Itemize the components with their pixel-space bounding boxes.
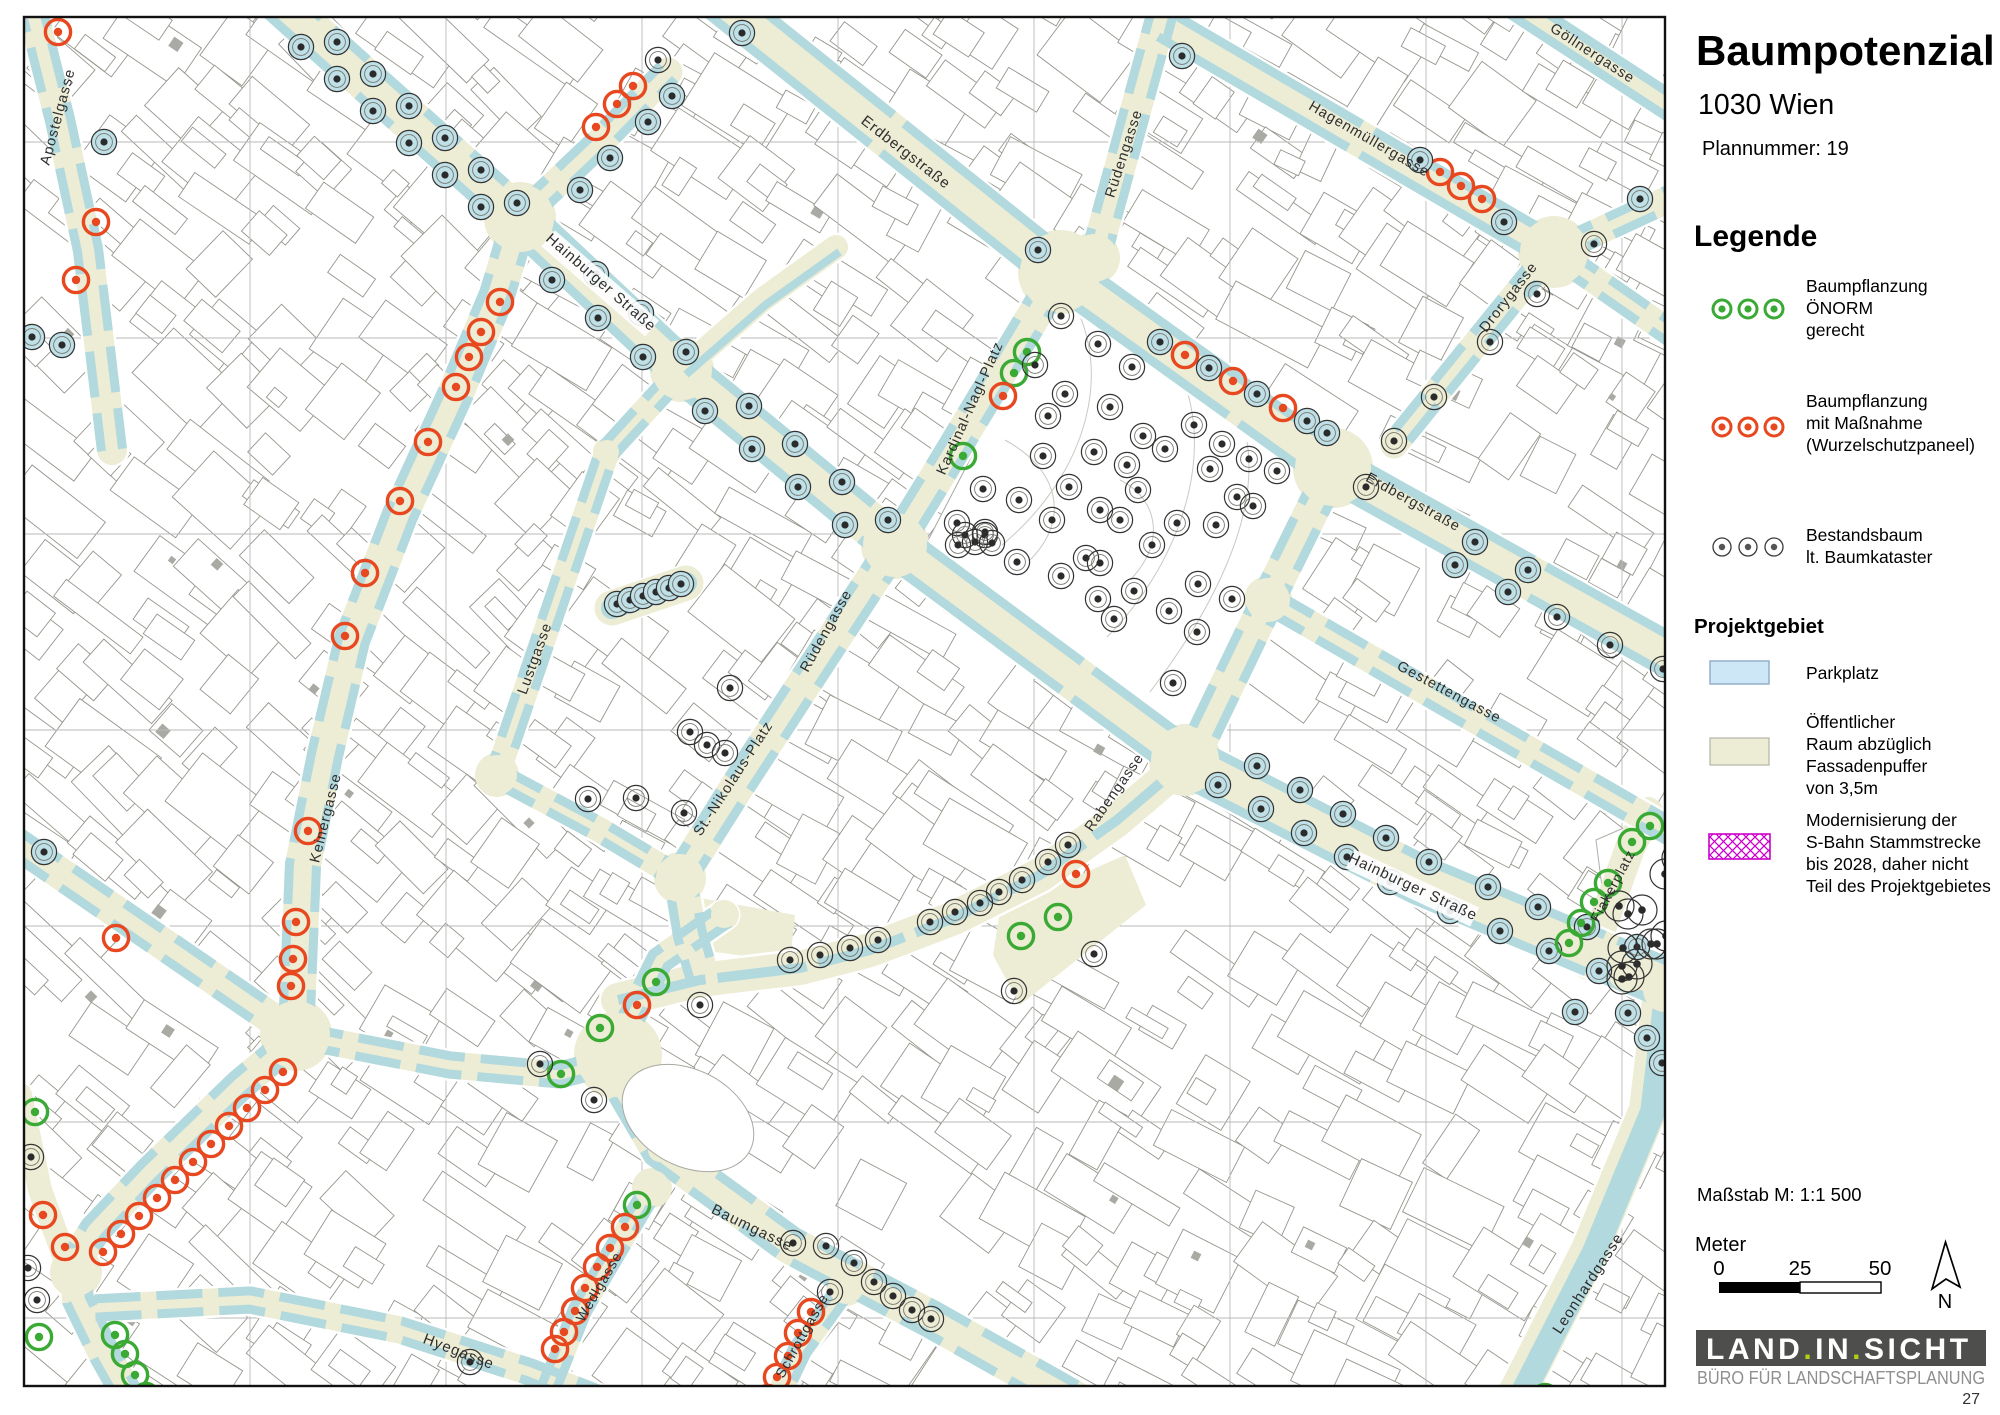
svg-text:1030 Wien: 1030 Wien: [1698, 89, 1834, 121]
svg-text:Öffentlicher: Öffentlicher: [1806, 712, 1895, 732]
svg-text:Maßstab M: 1:1 500: Maßstab M: 1:1 500: [1697, 1184, 1862, 1205]
svg-text:Baumpflanzung: Baumpflanzung: [1806, 391, 1928, 411]
svg-text:ÖNORM: ÖNORM: [1806, 298, 1873, 318]
svg-text:BÜRO FÜR LANDSCHAFTSPLANUNG: BÜRO FÜR LANDSCHAFTSPLANUNG: [1697, 1368, 1985, 1388]
svg-text:von 3,5m: von 3,5m: [1806, 778, 1878, 798]
svg-text:Meter: Meter: [1695, 1234, 1746, 1256]
svg-text:Baumpotenzial: Baumpotenzial: [1696, 27, 1995, 74]
svg-text:(Wurzelschutzpaneel): (Wurzelschutzpaneel): [1806, 435, 1975, 455]
svg-text:0: 0: [1713, 1257, 1724, 1280]
svg-text:Teil des Projektgebietes: Teil des Projektgebietes: [1806, 876, 1991, 896]
svg-text:Bestandsbaum: Bestandsbaum: [1806, 525, 1923, 545]
svg-text:Baumpflanzung: Baumpflanzung: [1806, 276, 1928, 296]
svg-text:lt. Baumkataster: lt. Baumkataster: [1806, 547, 1933, 567]
svg-text:Plannummer: 19: Plannummer: 19: [1702, 138, 1849, 160]
svg-text:mit Maßnahme: mit Maßnahme: [1806, 413, 1923, 433]
svg-text:S-Bahn Stammstrecke: S-Bahn Stammstrecke: [1806, 832, 1981, 852]
svg-text:50: 50: [1869, 1257, 1892, 1280]
svg-text:N: N: [1938, 1291, 1952, 1313]
svg-text:Raum abzüglich: Raum abzüglich: [1806, 734, 1931, 754]
svg-text:Projektgebiet: Projektgebiet: [1694, 615, 1824, 638]
svg-text:Legende: Legende: [1694, 220, 1817, 253]
svg-text:Parkplatz: Parkplatz: [1806, 663, 1879, 683]
svg-text:Fassadenpuffer: Fassadenpuffer: [1806, 756, 1927, 776]
svg-text:bis 2028, daher nicht: bis 2028, daher nicht: [1806, 854, 1969, 874]
svg-text:25: 25: [1789, 1257, 1812, 1280]
svg-text:gerecht: gerecht: [1806, 320, 1865, 340]
svg-text:27: 27: [1962, 1391, 1980, 1408]
svg-text:LAND.IN.SICHT: LAND.IN.SICHT: [1706, 1333, 1972, 1366]
svg-text:Modernisierung der: Modernisierung der: [1806, 810, 1957, 830]
